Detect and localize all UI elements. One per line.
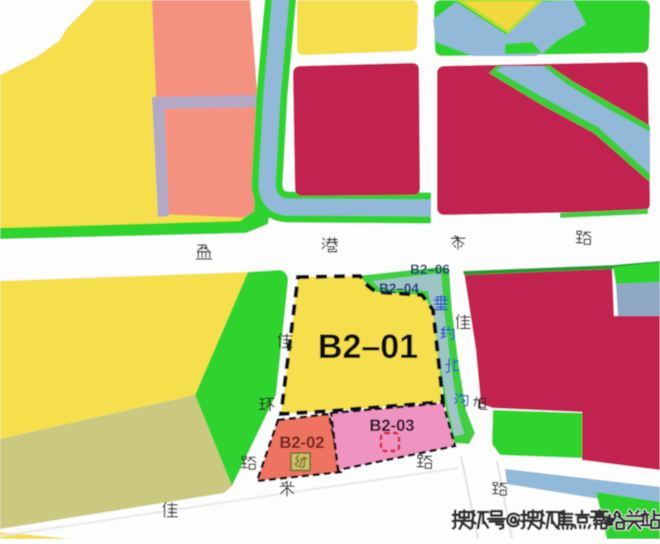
svg-text:B2–04: B2–04 (379, 281, 419, 296)
svg-text:B2–01: B2–01 (318, 328, 418, 366)
svg-text:B2–06: B2–06 (410, 262, 450, 277)
svg-text:B2-02: B2-02 (280, 434, 325, 452)
svg-text:B2-03: B2-03 (370, 417, 415, 435)
